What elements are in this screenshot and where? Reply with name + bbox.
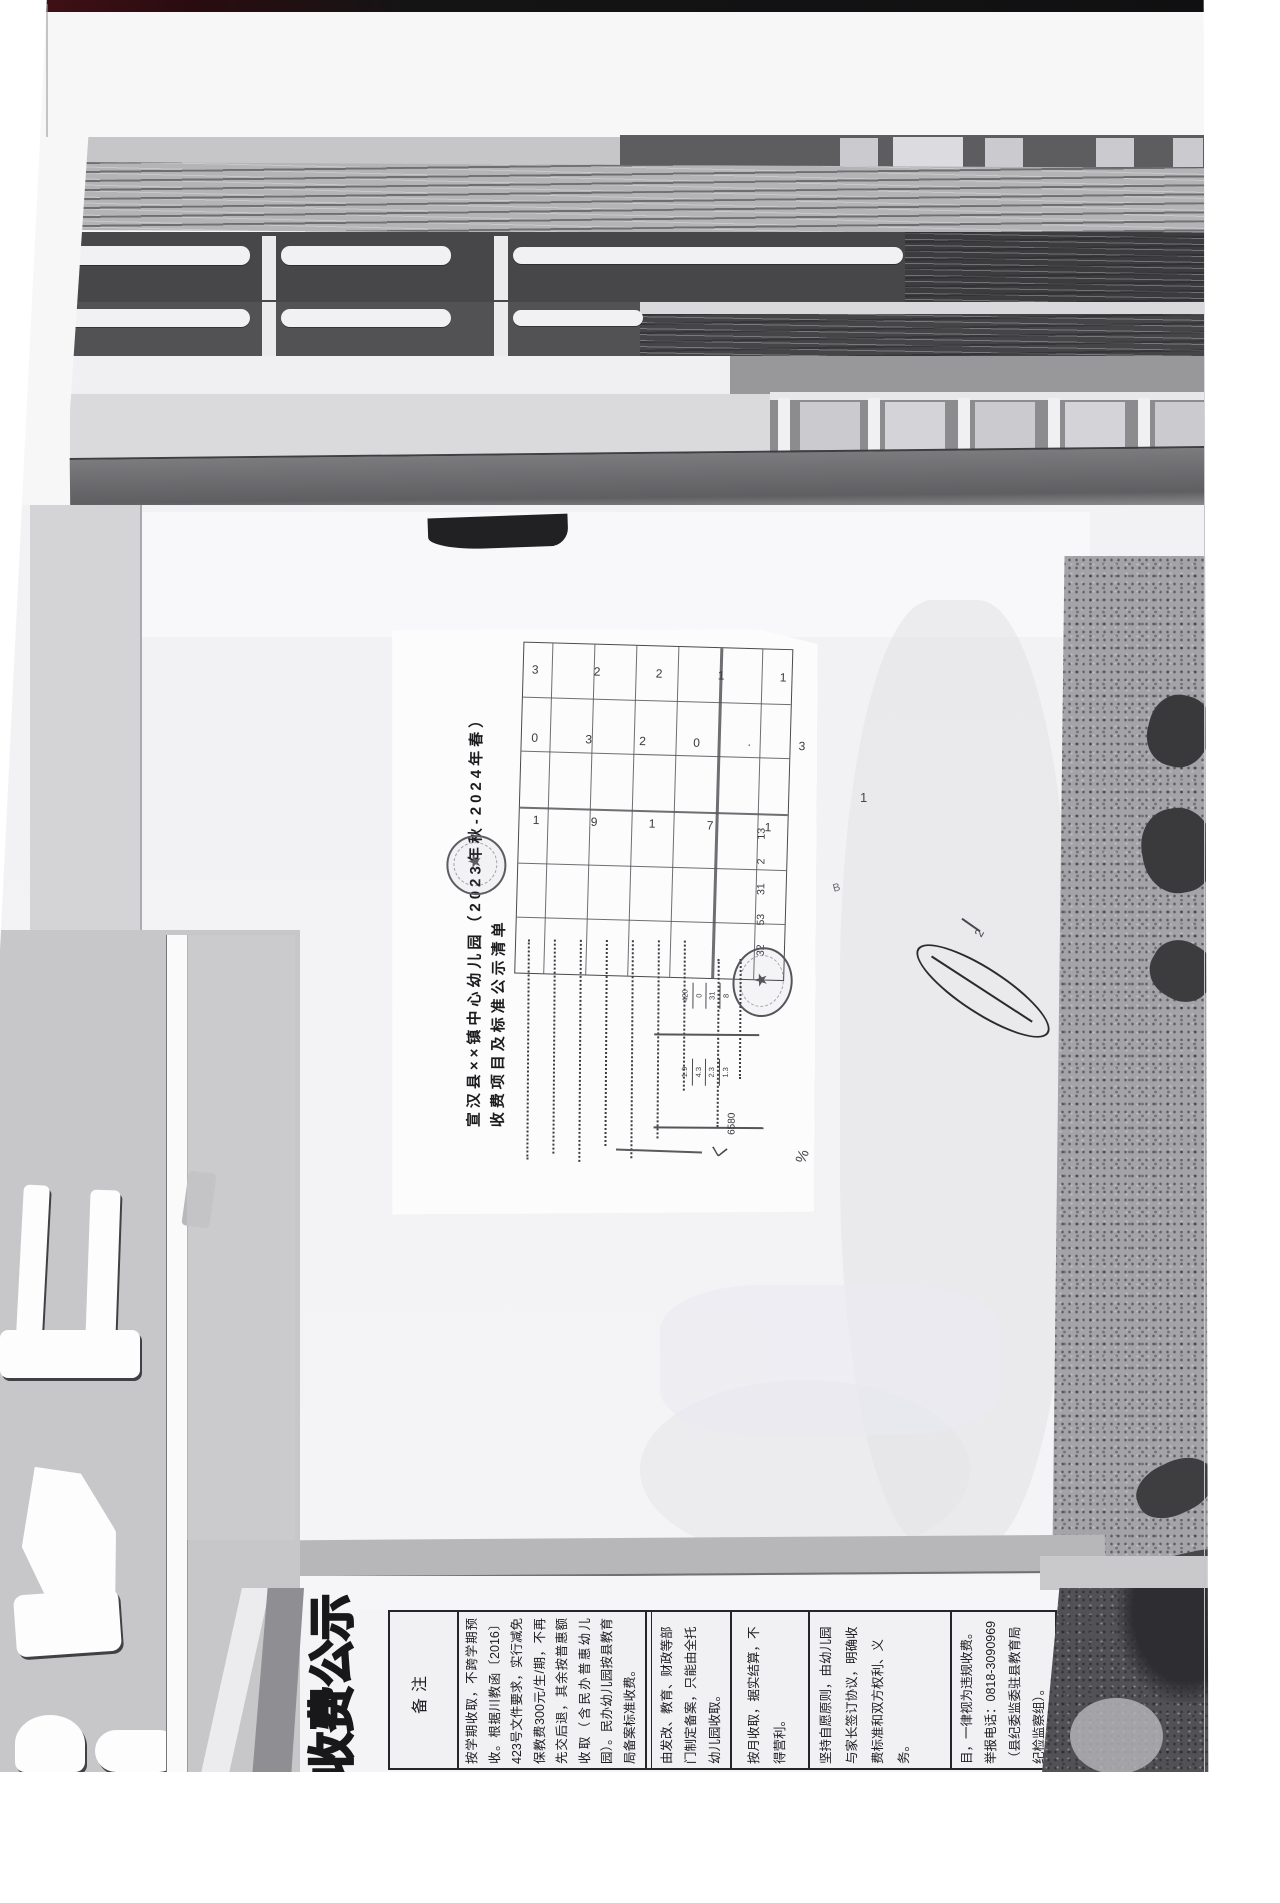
wall-character-fragment [15,1715,85,1772]
notes-table: 备注 按学期收取，不跨学期预收。根据川教函〔2016〕423号文件要求，实行减免… [388,1610,1057,1770]
window [1065,402,1125,450]
document-title-line1: 宣汉县××镇中心幼儿园（2023年秋-2024年春） [466,709,486,1127]
scribble-mark: 1 [860,790,867,805]
note-cell: 按月收取，据实结算，不得营利。 [735,1618,805,1764]
railing-slat [281,246,451,265]
scan-margin-right [1204,0,1280,1772]
figures-group: 420 0 31 8 [679,983,731,1009]
window [975,402,1035,450]
railing-band-2 [72,302,1206,356]
photo: 3 2 2 1 1 3 2 0 3 2 0 · 3 · 3 1 9 1 7 1 … [0,0,1280,1772]
window-frame [958,398,970,456]
wall-character-fragment [13,1588,122,1657]
window [840,138,878,167]
wall-character-fragment [0,1330,140,1378]
building-facade [0,130,1208,520]
ground-light-patch [1070,1698,1163,1772]
document-body-text [526,939,713,1162]
star-icon: ★ [751,972,771,988]
board-glare [660,1285,1000,1435]
paper-clip-shadow [427,514,568,551]
railing-slat [281,309,451,327]
fee-table-grid [514,642,793,981]
window-frame [778,398,790,456]
scanned-photo-page: { "sign": { "ornate_title": "收费公示" }, "n… [0,0,1280,1903]
note-cell: 目，一律视为违规收费。举报电话：0818-3090969（县纪委监委驻县教育局纪… [955,1618,1051,1764]
document-title-line2: 收费项目及标准公示清单 [490,918,508,1127]
pillar-strip [166,935,188,1772]
roof-strip [40,0,1280,12]
note-cell: 由发改、教育、财政等部门制定备案，只能由全托幼儿园收取。 [655,1618,728,1764]
note-cell: 按学期收取，不跨学期预收。根据川教函〔2016〕423号文件要求，实行减免保教费… [461,1618,643,1764]
railing-post [262,236,276,300]
note-cell: 坚持自愿原则，由幼儿园与家长签订协议，明确收费标准和双方权利、义务。 [813,1618,947,1764]
railing-post [262,302,276,356]
scan-margin-bottom [0,1772,1280,1903]
document-paper: 3 2 2 1 1 3 2 0 3 2 0 · 3 · 3 1 9 1 7 1 … [386,627,818,1218]
window [985,138,1023,167]
official-seal-icon: ★ [446,835,506,895]
window [1173,138,1203,167]
window [1155,402,1205,450]
ornate-sign-title: 收费公示 [292,1588,374,1772]
figures-total: 6580 [727,1087,747,1135]
railing-post [494,236,508,300]
window [800,402,860,450]
table-totals-column: 32 53 31 2 13 [755,656,785,956]
railing-slat [513,310,643,326]
railing-post [494,302,508,356]
figures-group: 1.9 4.3 2.3 1.3 [679,1059,731,1086]
window [893,137,963,167]
ground-texture [1038,1588,1216,1772]
wall-streaks [76,162,1206,236]
window-frame [868,398,880,456]
wall-character-fragment [85,1190,120,1341]
pillar-left [30,505,142,940]
railing-band-1 [74,232,1206,302]
photo-left-edge-line [46,4,48,144]
window [1096,138,1134,167]
window [885,402,945,450]
remark-header: 备注 [406,1658,436,1726]
railing-slat [513,247,903,264]
